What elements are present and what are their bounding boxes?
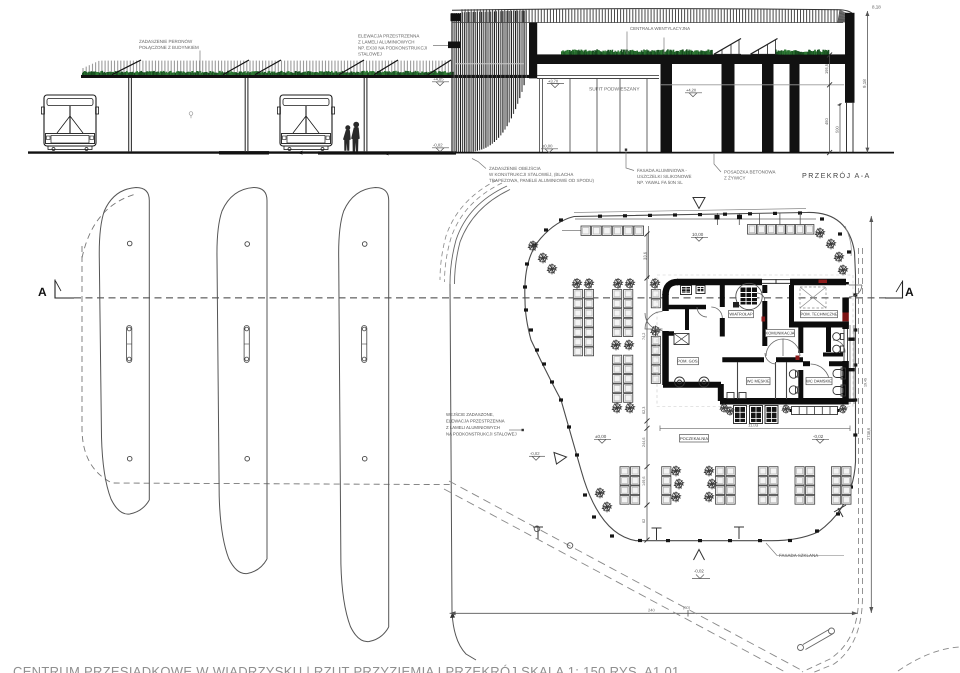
svg-text:195,5: 195,5 — [824, 63, 829, 74]
svg-text:POSADZKA BETONOWA: POSADZKA BETONOWA — [724, 170, 776, 175]
svg-text:240: 240 — [648, 608, 655, 613]
svg-text:-0,02: -0,02 — [813, 434, 824, 439]
svg-text:WC MĘSKIE: WC MĘSKIE — [747, 379, 770, 384]
svg-text:+4,20: +4,20 — [686, 88, 697, 93]
svg-text:500: 500 — [835, 126, 840, 133]
svg-text:NP. EX30 NA PODKONSTRUKCJI: NP. EX30 NA PODKONSTRUKCJI — [358, 46, 427, 51]
svg-text:Z LAMELI ALUMINIOWYCH: Z LAMELI ALUMINIOWYCH — [446, 425, 500, 430]
svg-text:-0,02: -0,02 — [530, 451, 540, 456]
svg-text:+3,70: +3,70 — [548, 78, 559, 83]
svg-text:WC DAMSKIE: WC DAMSKIE — [806, 379, 832, 384]
svg-text:POŁĄCZONE Z BUDYNKIEM: POŁĄCZONE Z BUDYNKIEM — [139, 45, 199, 50]
svg-text:ELEWACJA PRZESTRZENNA: ELEWACJA PRZESTRZENNA — [446, 419, 505, 424]
svg-text:W KONSTRUKCJI STALOWEJ, (BLACH: W KONSTRUKCJI STALOWEJ, (BLACHA — [489, 172, 573, 177]
svg-text:USZCZELKI SILIKONOWE: USZCZELKI SILIKONOWE — [637, 174, 692, 179]
svg-text:POM. TECHNICZNE: POM. TECHNICZNE — [800, 312, 837, 317]
svg-text:WIATROŁAP: WIATROŁAP — [729, 312, 753, 317]
svg-text:KOMUNIKACJA: KOMUNIKACJA — [766, 331, 795, 336]
svg-text:±0,00: ±0,00 — [595, 434, 607, 439]
svg-text:A: A — [38, 285, 47, 299]
svg-text:62,3: 62,3 — [642, 407, 646, 414]
svg-text:PRZEKRÓJ A-A: PRZEKRÓJ A-A — [802, 171, 871, 180]
svg-text:ZADASZENIE OBEJŚCIA: ZADASZENIE OBEJŚCIA — [489, 165, 541, 171]
svg-text:450: 450 — [824, 118, 829, 125]
svg-text:STALOWEJ: STALOWEJ — [358, 52, 382, 57]
svg-text:Z ŻYWICY: Z ŻYWICY — [724, 176, 746, 181]
svg-text:ZADASZENIE PERONÓW: ZADASZENIE PERONÓW — [139, 39, 193, 44]
svg-text:NA PODKONSTRUKCJI STALOWEJ: NA PODKONSTRUKCJI STALOWEJ — [446, 432, 517, 437]
svg-text:SUFIT PODWIESZANY: SUFIT PODWIESZANY — [589, 87, 640, 93]
svg-text:244,6: 244,6 — [642, 437, 646, 447]
svg-text:2738,6: 2738,6 — [866, 427, 871, 440]
svg-text:+4,85: +4,85 — [433, 77, 444, 82]
svg-text:±0,00: ±0,00 — [542, 144, 553, 149]
svg-text:WEJŚCIE ZADASZONE,: WEJŚCIE ZADASZONE, — [446, 412, 494, 417]
svg-text:11,03: 11,03 — [748, 423, 759, 428]
svg-text:-0,02: -0,02 — [694, 569, 704, 574]
svg-text:62: 62 — [642, 519, 646, 523]
svg-text:ELEWACJA PRZESTRZENNA: ELEWACJA PRZESTRZENNA — [358, 34, 419, 39]
svg-text:TRAPEZOWA, PANELE ALUMINIOWE O: TRAPEZOWA, PANELE ALUMINIOWE OD SPODU) — [489, 178, 595, 183]
svg-text:NP. YAWAL FA 50N SL: NP. YAWAL FA 50N SL — [637, 180, 683, 185]
svg-text:CENTRALA WENTYLACYJNA: CENTRALA WENTYLACYJNA — [630, 26, 690, 31]
svg-text:149,6: 149,6 — [642, 476, 646, 486]
svg-text:19,45: 19,45 — [864, 378, 868, 387]
svg-text:Z LAMELI ALUMINIOWYCH: Z LAMELI ALUMINIOWYCH — [358, 40, 415, 45]
svg-text:POM. GOS.: POM. GOS. — [677, 359, 698, 364]
svg-text:A: A — [905, 285, 914, 299]
svg-text:74,2: 74,2 — [642, 333, 646, 340]
svg-text:10,00: 10,00 — [692, 232, 704, 237]
svg-text:-0,02: -0,02 — [433, 143, 443, 148]
svg-text:8,18: 8,18 — [872, 5, 881, 10]
svg-text:CENTRUM PRZESIADKOWE W WIADRZY: CENTRUM PRZESIADKOWE W WIADRZYSKU | RZUT… — [13, 664, 680, 673]
svg-text:9,18: 9,18 — [862, 79, 867, 88]
svg-text:FASADA ALUMINIOWA -: FASADA ALUMINIOWA - — [637, 168, 687, 173]
svg-text:POCZEKALNIA: POCZEKALNIA — [680, 436, 708, 441]
